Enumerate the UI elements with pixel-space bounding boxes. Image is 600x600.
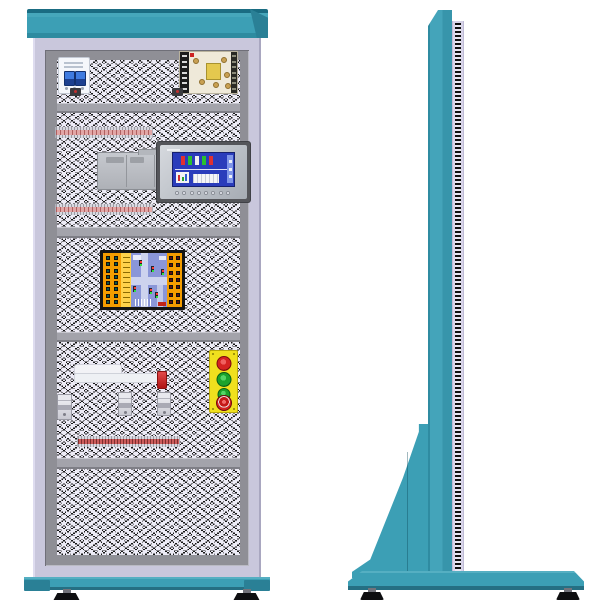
board-label-row <box>123 287 130 288</box>
traffic-signal <box>161 269 164 275</box>
cable-clamp <box>70 88 81 96</box>
board-label-row <box>123 292 130 293</box>
traffic-signal <box>139 260 142 266</box>
gusset-fold-line <box>407 452 408 572</box>
board-terminal <box>169 278 173 282</box>
board-label-row <box>123 257 130 258</box>
board-label-row <box>123 297 130 298</box>
hmi-process-pipe <box>175 169 230 170</box>
breaker-terminal <box>81 87 84 90</box>
screw <box>233 408 235 410</box>
din-device <box>57 394 72 420</box>
plc-segment-seam <box>154 155 155 187</box>
board-terminal <box>169 256 173 260</box>
psu-capacitor <box>213 82 219 88</box>
road-horizontal <box>131 277 167 285</box>
side-column <box>428 10 452 578</box>
board-terminal <box>114 262 118 266</box>
board-terminal <box>169 271 173 275</box>
clamp-indicator <box>74 90 77 93</box>
hmi-function-key <box>219 191 223 195</box>
hmi-function-key <box>182 191 186 195</box>
traffic-signal <box>149 288 152 294</box>
hmi-tank-green <box>188 156 192 165</box>
board-terminal <box>114 294 118 298</box>
board-red-label <box>158 302 166 306</box>
board-terminal <box>176 263 180 267</box>
wiring-duct <box>55 204 153 215</box>
board-terminal <box>114 300 118 304</box>
board-terminal <box>169 285 173 289</box>
front-top-cap <box>27 9 268 38</box>
hmi-screen <box>172 152 235 187</box>
breaker-label-line <box>64 66 83 68</box>
board-left-terminal-panel <box>103 253 121 307</box>
board-terminal <box>176 293 180 297</box>
breaker-toggle <box>64 71 75 86</box>
psu-capacitor <box>225 83 231 89</box>
screw <box>212 353 214 355</box>
breaker-label-line <box>64 62 83 64</box>
breaker-terminal <box>65 87 68 90</box>
wiring-duct <box>77 436 180 447</box>
board-block <box>159 256 166 260</box>
pushbutton-station <box>209 350 238 413</box>
board-label-row <box>123 272 130 273</box>
hmi-tank-red <box>181 156 185 165</box>
clamp-indicator <box>176 90 179 93</box>
board-terminal <box>114 269 118 273</box>
hmi-data-table <box>193 174 219 183</box>
hmi-tank-white <box>195 156 199 165</box>
hmi-function-key <box>175 191 179 195</box>
emergency-stop-button <box>216 395 232 411</box>
board-terminal <box>106 287 110 291</box>
relay-rail <box>74 373 165 383</box>
hmi-function-key <box>190 191 194 195</box>
divider-rail <box>57 332 240 342</box>
board-label-row <box>123 282 130 283</box>
red-indicator <box>157 371 167 389</box>
edge-strip-slots <box>455 23 461 576</box>
green-pushbutton <box>216 372 231 387</box>
psu-capacitors <box>180 52 237 93</box>
red-pushbutton <box>216 356 231 371</box>
hmi-function-key-row <box>172 189 233 197</box>
side-view <box>300 0 600 600</box>
base-corner-bracket <box>24 580 50 591</box>
plc-segment-seam <box>126 155 127 187</box>
psu-capacitor <box>221 57 227 63</box>
board-terminal <box>114 275 118 279</box>
foot-pad <box>556 592 580 600</box>
board-terminal <box>176 300 180 304</box>
cable-clamp <box>172 88 183 96</box>
front-view <box>0 0 300 600</box>
screw <box>233 353 235 355</box>
board-terminal <box>176 271 180 275</box>
board-terminal <box>106 300 110 304</box>
traffic-light-training-board <box>100 250 185 310</box>
board-label-row <box>123 262 130 263</box>
hmi-function-key <box>211 191 215 195</box>
foot-stem <box>63 589 71 593</box>
foot-stem <box>243 589 251 593</box>
board-terminal <box>106 256 110 260</box>
board-label-row <box>123 302 130 303</box>
zebra-crossing <box>135 299 151 306</box>
hmi-function-key <box>204 191 208 195</box>
board-label-row <box>123 267 130 268</box>
din-device <box>157 392 171 416</box>
wiring-duct <box>55 127 153 138</box>
divider-rail <box>57 227 240 238</box>
board-terminal <box>106 275 110 279</box>
board-terminal <box>169 300 173 304</box>
board-label-row <box>123 277 130 278</box>
board-intersection-graphic <box>131 253 167 307</box>
leveling-foot <box>53 589 80 600</box>
traffic-signal <box>133 286 136 292</box>
foot-pad <box>53 593 80 600</box>
board-terminal <box>114 287 118 291</box>
board-terminal <box>106 294 110 298</box>
foot-pad <box>233 593 260 600</box>
board-terminal <box>106 281 110 285</box>
board-terminal <box>106 269 110 273</box>
foot-pad <box>360 592 384 600</box>
panel-edge-strip <box>452 21 464 578</box>
hmi-tank-red <box>209 156 213 165</box>
plc-status-block <box>106 157 124 163</box>
board-terminal <box>176 256 180 260</box>
cabinet-drawing <box>0 0 600 600</box>
hmi-tank-green <box>202 156 206 165</box>
duct-rim <box>78 444 179 447</box>
plc-status-block <box>130 157 144 163</box>
board-terminal <box>106 262 110 266</box>
psu-warning-mark <box>190 53 194 57</box>
din-device <box>118 392 132 416</box>
hmi-brand-mark <box>167 149 180 151</box>
leveling-foot <box>360 588 384 600</box>
board-terminal <box>114 281 118 285</box>
board-terminal <box>114 256 118 260</box>
leveling-foot <box>556 588 580 600</box>
foot-stem <box>564 588 572 592</box>
hmi-side-menu <box>227 155 233 183</box>
traffic-signal <box>151 266 154 272</box>
support-gusset <box>352 424 428 578</box>
board-terminal <box>169 293 173 297</box>
board-terminal <box>176 278 180 282</box>
traffic-signal <box>155 292 158 298</box>
board-terminal <box>169 263 173 267</box>
hmi-bar-chart <box>176 172 189 183</box>
breaker-toggle <box>75 71 86 86</box>
duct-rim <box>56 135 152 138</box>
psu-capacitor <box>224 72 230 78</box>
psu-capacitor <box>193 58 199 64</box>
divider-rail <box>57 458 240 469</box>
board-label-strip <box>121 253 131 307</box>
top-cap-fold <box>250 9 268 38</box>
switching-power-supply <box>179 51 238 94</box>
hmi-function-key <box>197 191 201 195</box>
divider-rail <box>57 103 240 113</box>
duct-rim <box>56 212 152 215</box>
board-right-terminal-panel <box>167 253 182 307</box>
hmi-function-key <box>226 191 230 195</box>
leveling-foot <box>233 589 260 600</box>
screw <box>212 408 214 410</box>
board-terminal <box>176 285 180 289</box>
psu-capacitor <box>199 79 205 85</box>
foot-stem <box>368 588 376 592</box>
